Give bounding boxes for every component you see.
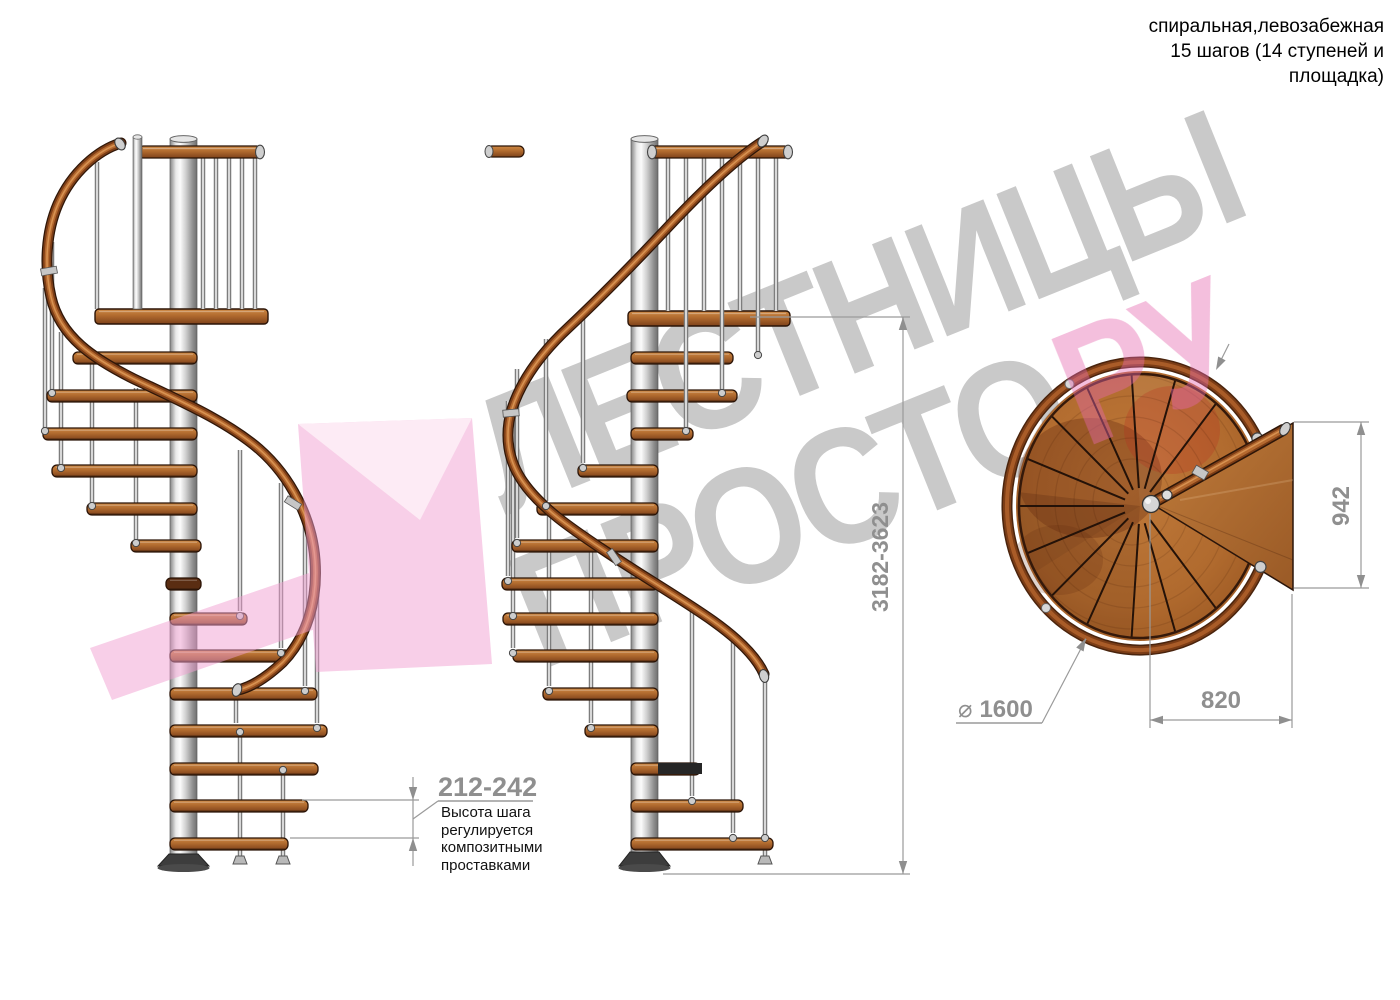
leader-step: [413, 801, 438, 819]
connector-knob: [754, 351, 761, 358]
plan-center-pole: [1143, 496, 1160, 513]
dimension-arrow: [409, 787, 417, 800]
dimension-arrow: [899, 861, 907, 874]
rail-end-cap: [256, 145, 265, 159]
connector-knob: [587, 724, 594, 731]
baluster-foot: [758, 856, 772, 864]
central-pole: [170, 139, 197, 862]
connector-knob: [545, 687, 552, 694]
title-line: площадка): [1149, 64, 1384, 89]
connector-knob: [277, 649, 284, 656]
step-height-note: Высота шага регулируется композитными пр…: [441, 804, 543, 874]
handrail-sleeve: [503, 409, 520, 417]
far-rail-cap: [485, 146, 493, 158]
connector-knob: [313, 724, 320, 731]
connector-knob: [504, 577, 511, 584]
left-stair-elevation: [41, 135, 327, 872]
connector-knob: [718, 389, 725, 396]
connector-knob: [279, 766, 286, 773]
connector-knob: [236, 728, 243, 735]
baluster-foot: [276, 856, 290, 864]
connector-knob: [579, 464, 586, 471]
note-line: композитными: [441, 839, 543, 857]
handrail-sleeve-mark2: [1042, 604, 1051, 613]
pole-top-cap: [631, 136, 658, 143]
pole-base-flange: [619, 852, 670, 866]
connector-knob: [729, 834, 736, 841]
dimension-arrow: [1150, 716, 1163, 724]
leader-diameter: [1042, 639, 1086, 723]
baluster-foot: [233, 856, 247, 864]
note-line: регулируется: [441, 822, 543, 840]
dim-platform-width-label: 820: [1201, 687, 1241, 714]
dim-diameter-label: ⌀1600: [958, 696, 1033, 723]
pole-base: [619, 864, 671, 872]
balustrade-top-rail: [650, 146, 790, 158]
connector-knob: [57, 464, 64, 471]
dim-total-height-label: 3182-3623: [867, 502, 893, 612]
rail-end-cap: [648, 145, 657, 159]
rail-end-cap: [784, 145, 793, 159]
connector-knob: [88, 502, 95, 509]
tread-connector-dark: [658, 763, 702, 774]
title-line: 15 шагов (14 ступеней и: [1149, 39, 1384, 64]
dimension-arrow: [409, 838, 417, 851]
newel-post: [133, 137, 142, 309]
connector-knob: [509, 612, 516, 619]
newel-cap: [133, 135, 142, 139]
dimension-arrow: [1279, 716, 1292, 724]
note-line: Высота шага: [441, 804, 543, 822]
connector-knob: [761, 834, 768, 841]
staircase-drawing: ЛЕСТНИЦЫ ПРОСТО: [0, 0, 1400, 1000]
connector-knob: [48, 389, 55, 396]
drawing-page: ЛЕСТНИЦЫ ПРОСТО: [0, 0, 1400, 1000]
pole-base: [158, 864, 210, 872]
handrail-cap-bottom: [1255, 561, 1266, 572]
connector-knob: [682, 427, 689, 434]
diameter-icon: ⌀: [958, 696, 972, 723]
dimension-arrow: [1357, 575, 1365, 588]
title-annotation: спиральная,левозабежная 15 шагов (14 сту…: [1149, 14, 1384, 89]
plan-center-pole-highlight: [1145, 498, 1151, 504]
connector-knob: [301, 687, 308, 694]
dim-step-height-label: 212-242: [438, 772, 537, 802]
title-line: спиральная,левозабежная: [1149, 14, 1384, 39]
connector-knob: [542, 502, 549, 509]
plan-center-fitting: [1162, 490, 1172, 500]
diameter-value: 1600: [979, 696, 1032, 723]
dim-platform-depth-label: 942: [1328, 486, 1355, 526]
connector-knob: [688, 797, 695, 804]
note-line: проставками: [441, 857, 543, 875]
connector-knob: [132, 539, 139, 546]
connector-knob: [509, 649, 516, 656]
pole-top-cap: [170, 136, 197, 143]
dimension-arrow: [1357, 422, 1365, 435]
connector-knob: [513, 539, 520, 546]
connector-knob: [41, 427, 48, 434]
balustrade-top-rail: [138, 146, 262, 158]
